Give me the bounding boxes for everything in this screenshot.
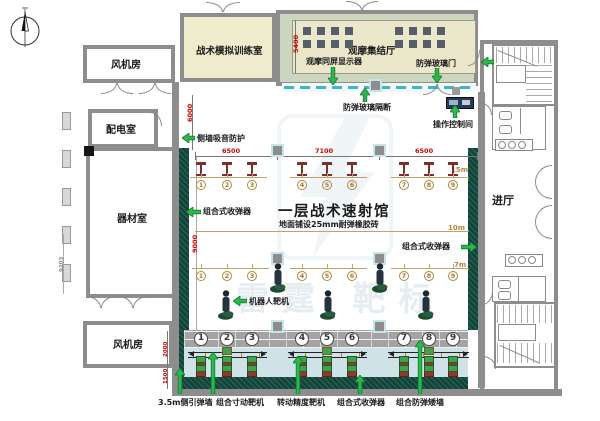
target-machine-icon — [322, 365, 332, 377]
seat-square — [303, 40, 311, 48]
room-label-fan-top: 风机房 — [111, 56, 141, 71]
door-arc-icon — [362, 1, 378, 10]
seat-square — [331, 27, 339, 35]
column-marker — [373, 144, 386, 157]
watermark-logo-icon — [275, 112, 395, 262]
range-tick — [302, 173, 303, 177]
dim-top-3: 6500 — [415, 147, 433, 155]
dim-top-1: 6500 — [222, 147, 240, 155]
target-machine-icon — [399, 365, 409, 377]
annotation-arrow-icon — [355, 375, 365, 394]
console-panel — [462, 100, 470, 105]
room-label-fan-bottom: 风机房 — [113, 336, 143, 351]
column-marker — [271, 144, 284, 157]
lane-number-firing: 6 — [345, 332, 359, 346]
range-tick — [227, 173, 228, 177]
column-marker — [452, 87, 460, 95]
range-tick — [352, 173, 353, 177]
seat-square — [423, 40, 431, 48]
room-label-entrance: 进厅 — [492, 192, 514, 208]
sink-basin-icon — [518, 256, 526, 264]
lane-number-firing: 4 — [295, 332, 309, 346]
lane-number-range: 2 — [222, 271, 232, 281]
range-tick — [429, 264, 430, 268]
seat-square — [345, 40, 353, 48]
lane-number-range: 6 — [347, 271, 357, 281]
lane-number-range: 1 — [196, 180, 206, 190]
toilet-icon — [498, 280, 511, 289]
stair-landing — [498, 324, 536, 341]
annotation-arrow-icon — [432, 68, 442, 83]
seat-square — [395, 40, 403, 48]
lane-number-range: 9 — [448, 271, 458, 281]
door-arc-icon — [468, 50, 480, 66]
label-side-wall-sound: 侧墙吸音防护 — [197, 133, 245, 144]
lane-number-firing: 2 — [220, 332, 234, 346]
lane-number-range: 3 — [247, 180, 257, 190]
seat-square — [409, 27, 417, 35]
range-tick — [453, 264, 454, 268]
lane-number-range: 9 — [448, 180, 458, 190]
range-line-15m — [391, 177, 469, 178]
range-tick — [201, 173, 202, 177]
sink-basin-icon — [508, 141, 516, 149]
annotation-arrow-icon — [175, 368, 185, 394]
annotation-arrow-icon — [182, 133, 195, 143]
window-stub — [62, 188, 71, 206]
range-tick — [352, 264, 353, 268]
north-compass-icon — [8, 5, 42, 51]
floor-plan-canvas: 雷霆 靶标 风机房 配电室 器材室 风机房 9203 战术模拟训练室 观摩集结厅… — [0, 0, 600, 421]
range-tick — [302, 264, 303, 268]
annotation-arrow-icon — [233, 296, 247, 306]
annotation-arrow-icon — [328, 67, 338, 85]
door-arc-icon — [117, 83, 133, 94]
toilet-icon — [498, 291, 511, 300]
lane-number-firing: 1 — [194, 332, 208, 346]
dim-hall-left: 9000 — [191, 235, 199, 253]
range-tick — [453, 173, 454, 177]
lane-number-firing: 5 — [320, 332, 334, 346]
stair-treads — [497, 343, 553, 363]
target-machine-icon — [424, 365, 434, 377]
hall-east-wall — [478, 92, 485, 388]
toilet-icon — [499, 111, 512, 120]
seat-square — [437, 40, 445, 48]
sink-basin-icon — [528, 256, 536, 264]
lane-number-firing: 7 — [397, 332, 411, 346]
range-tick — [429, 173, 430, 177]
bullet-collector-band-bottom — [184, 377, 468, 389]
range-line-7m — [290, 268, 367, 269]
lane-number-range: 7 — [399, 180, 409, 190]
annotation-arrow-icon — [450, 105, 460, 118]
robot-target-icon — [418, 289, 435, 320]
dim-tick — [477, 152, 478, 160]
label-robot-target: 机器人靶机 — [249, 296, 289, 307]
target-machine-icon — [196, 365, 206, 377]
sink-basin-icon — [518, 141, 526, 149]
room-label-tactical-sim: 战术模拟训练室 — [196, 43, 263, 57]
stair-treads — [497, 305, 553, 323]
toilet-icon — [499, 125, 512, 134]
annotation-arrow-icon — [415, 340, 425, 394]
lane-number-range: 4 — [297, 180, 307, 190]
target-machine-icon — [448, 365, 458, 377]
stair-treads — [526, 64, 552, 102]
seat-square — [317, 40, 325, 48]
label-precision-target: 转动精度靶机 — [277, 397, 325, 408]
annotation-arrow-icon — [208, 352, 218, 394]
range-tick — [227, 264, 228, 268]
lane-number-range: 5 — [322, 271, 332, 281]
window-stub — [62, 150, 71, 168]
seat-square — [303, 27, 311, 35]
door-arc-icon — [223, 2, 240, 12]
window-stub — [62, 112, 71, 130]
door-arc-icon — [150, 112, 162, 126]
range-line-15m — [290, 177, 367, 178]
seat-square — [331, 40, 339, 48]
dim-top-2: 7100 — [315, 147, 333, 155]
bullet-collector-strip-right — [468, 148, 478, 330]
label-control-room: 操作控制间 — [433, 119, 473, 130]
label-side-guide-wall: 3.5m侧引弹墙 — [158, 397, 213, 408]
room-label-power: 配电室 — [106, 121, 136, 136]
door-arc-icon — [423, 84, 437, 95]
lane-number-range: 1 — [196, 271, 206, 281]
sink-basin-icon — [498, 141, 506, 149]
range-tick — [404, 264, 405, 268]
label-low-wall: 组合防弹矮墙 — [396, 397, 444, 408]
door-arc-icon — [206, 2, 223, 12]
range-tick — [327, 264, 328, 268]
seat-square — [423, 27, 431, 35]
target-machine-icon — [247, 365, 257, 377]
dim-upper-left: 6000 — [186, 104, 194, 122]
lane-number-firing: 3 — [245, 332, 259, 346]
range-tick — [201, 264, 202, 268]
robot-target-icon — [270, 262, 287, 293]
column-marker — [271, 320, 284, 333]
door-arc-icon — [437, 84, 451, 95]
dim-observation: 5400 — [292, 35, 300, 53]
sink-basin-icon — [508, 256, 516, 264]
room-label-equipment: 器材室 — [117, 210, 147, 225]
door-arc-icon — [155, 83, 171, 94]
corner-column — [84, 146, 94, 156]
door-arc-icon — [101, 83, 117, 94]
column-marker — [369, 79, 382, 92]
room-label-observation: 观摩集结厅 — [348, 43, 396, 57]
annotation-arrow-icon — [481, 57, 494, 67]
label-collector-left: 组合式收弹器 — [203, 206, 251, 217]
annotation-arrow-icon — [461, 242, 477, 252]
range-mark-10m: 10m — [448, 224, 465, 232]
lane-number-range: 7 — [399, 271, 409, 281]
seat-square — [345, 27, 353, 35]
label-observation-display: 观摩同屏显示器 — [306, 56, 362, 67]
hall-subtitle: 地面铺设25mm耐弹橡胶砖 — [279, 219, 379, 230]
range-line-7m — [192, 268, 269, 269]
hall-title: 一层战术速射馆 — [278, 200, 390, 221]
seat-square — [409, 40, 417, 48]
lane-number-range: 3 — [247, 271, 257, 281]
stall-divider — [518, 277, 519, 301]
annotation-arrow-icon — [360, 88, 370, 102]
lane-number-range: 4 — [297, 271, 307, 281]
column-marker — [373, 320, 386, 333]
lane-number-range: 8 — [424, 271, 434, 281]
range-line-15m — [190, 177, 267, 178]
stair-landing — [496, 65, 526, 83]
dim-west-wing: 9203 — [59, 257, 65, 272]
seat-square — [395, 27, 403, 35]
robot-target-icon — [372, 262, 389, 293]
rail-carriage-icon — [424, 347, 434, 355]
lane-number-range: 5 — [322, 180, 332, 190]
lane-number-range: 6 — [347, 180, 357, 190]
label-collector-right: 组合式收弹器 — [402, 241, 450, 252]
range-line-10m — [195, 231, 469, 232]
label-inch-target: 组合寸动靶机 — [216, 397, 264, 408]
seat-square — [317, 27, 325, 35]
range-tick — [404, 173, 405, 177]
range-tick — [327, 173, 328, 177]
rail-carriage-icon — [222, 347, 232, 355]
dim-line — [195, 156, 478, 157]
robot-target-icon — [320, 289, 337, 320]
seat-square — [437, 27, 445, 35]
dim-bottom-2: 1500 — [163, 369, 169, 384]
rail-carriage-icon — [322, 347, 332, 355]
dim-line — [63, 234, 64, 294]
south-wall — [172, 389, 562, 396]
range-mark-7m: 7m — [454, 261, 466, 269]
hall-west-wall — [172, 82, 179, 395]
range-tick — [252, 264, 253, 268]
annotation-arrow-icon — [186, 207, 201, 217]
stall-divider — [520, 108, 521, 134]
range-tick — [252, 173, 253, 177]
label-collector-bottom: 组合式收弹器 — [337, 397, 385, 408]
door-arc-icon — [139, 83, 155, 94]
lane-number-firing: 9 — [446, 332, 460, 346]
label-glass-partition: 防弹玻璃隔断 — [343, 102, 391, 113]
dim-bottom-1: 2000 — [163, 342, 169, 357]
target-machine-icon — [222, 365, 232, 377]
lane-number-range: 2 — [222, 180, 232, 190]
annotation-arrow-icon — [293, 356, 303, 394]
lane-number-range: 8 — [424, 180, 434, 190]
door-arc-icon — [346, 1, 362, 10]
